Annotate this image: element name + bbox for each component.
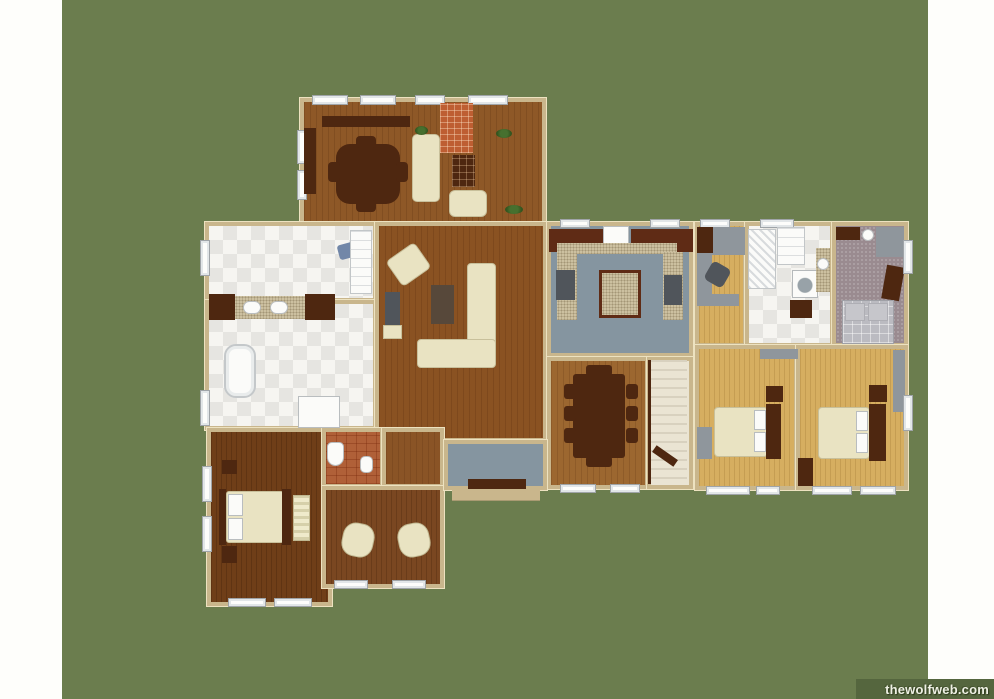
shower	[298, 396, 340, 428]
range	[556, 270, 575, 300]
dining-chair-s	[586, 456, 612, 467]
master-window-left-2	[202, 516, 212, 552]
bedroom-a-window-2	[756, 486, 780, 495]
breakfast-chair-w	[328, 162, 340, 182]
dining-chair-n	[586, 365, 612, 376]
stair-rail	[648, 360, 651, 484]
watermark: thewolfweb.com	[856, 679, 994, 699]
breakfast-chair-n	[356, 136, 376, 148]
bedroom-a-rug	[697, 427, 712, 459]
sitting-window-2	[392, 580, 426, 589]
office-cabinet	[697, 227, 713, 253]
bedroom-a-headboard	[766, 404, 781, 459]
plant-2	[496, 129, 512, 138]
bedroom-b-window-1	[812, 486, 852, 495]
tall-cabinet	[304, 128, 316, 194]
dining-chair-r2	[626, 406, 638, 421]
toilet	[327, 442, 344, 466]
laundry-vanity	[816, 248, 830, 292]
ne-dresser	[836, 227, 860, 240]
family-window-1	[312, 95, 348, 105]
breakfast-chair-e	[396, 162, 408, 182]
linen-shelves	[350, 230, 372, 294]
master-nightstand-1	[222, 460, 237, 474]
louver-closet	[748, 229, 776, 289]
refrigerator	[664, 275, 682, 305]
ne-pillow-1	[845, 303, 865, 321]
laundry-sink	[817, 258, 829, 270]
dining-chair-r3	[626, 428, 638, 443]
kitchen-window-2	[650, 219, 680, 228]
bedroom-a-window-1	[706, 486, 750, 495]
sectional-sofa-short	[417, 339, 496, 368]
render-page: { "watermark": { "text": "thewolfweb.com…	[0, 0, 994, 699]
vanity-cabinet-left	[209, 294, 235, 320]
staircase	[651, 360, 687, 484]
dining-chair-l3	[564, 428, 576, 443]
vanity-cabinet-right	[305, 294, 335, 320]
vanity-sink-1	[243, 301, 261, 314]
ne-pillow-2	[868, 303, 888, 321]
dining-chair-l1	[564, 384, 576, 399]
hall	[382, 428, 444, 488]
bedroom-a-nightstand	[766, 386, 783, 402]
bedroom-a-closet	[760, 349, 798, 359]
ne-lamp	[862, 229, 874, 241]
watermark-text: thewolfweb.com	[885, 682, 989, 697]
bedroom-b-window-2	[860, 486, 896, 495]
breakfast-chair-s	[356, 200, 376, 212]
family-window-4	[468, 95, 508, 105]
plant-1	[415, 126, 428, 135]
bedroom-b-door	[798, 458, 813, 486]
master-pillow-1	[228, 494, 243, 516]
washer	[792, 270, 818, 298]
bedroom-a-pillow-2	[754, 432, 766, 452]
wc-sink	[360, 456, 373, 473]
bedroom-a-pillow-1	[754, 410, 766, 430]
master-pillow-2	[228, 518, 243, 540]
dining-window-2	[610, 484, 640, 493]
bedroom-b-nightstand	[869, 385, 887, 402]
floor-plan	[0, 0, 994, 699]
bedroom-b-pillow-1	[856, 411, 868, 431]
master-window-south-2	[274, 598, 312, 607]
ne-window-right	[903, 240, 913, 274]
bath-window-left-2	[200, 390, 210, 426]
dining-chair-r1	[626, 384, 638, 399]
bedroom-b-pillow-2	[856, 433, 868, 453]
master-window-left-1	[202, 466, 212, 502]
coffee-table	[431, 285, 454, 324]
family-window-2	[360, 95, 396, 105]
master-nightstand-2	[222, 546, 237, 563]
bathtub	[224, 344, 256, 398]
master-window-south-1	[228, 598, 266, 607]
sitting-window-1	[334, 580, 368, 589]
breakfast-table	[336, 144, 400, 204]
plant-3	[505, 205, 523, 214]
kitchen-island	[599, 270, 641, 318]
desk	[697, 294, 739, 306]
bath-window-left	[200, 240, 210, 276]
chaise	[412, 134, 440, 202]
sideboard	[322, 116, 410, 127]
bedroom-b-window-right	[903, 395, 913, 431]
dining-table	[573, 374, 625, 458]
family-armchair	[449, 190, 487, 217]
master-bench	[293, 495, 310, 541]
fireplace	[440, 103, 473, 153]
tv-stand	[383, 325, 402, 339]
tv	[385, 292, 400, 325]
master-footboard	[282, 489, 291, 545]
entry-step	[452, 489, 540, 500]
bedroom-b-headboard	[869, 404, 886, 461]
ne-closet	[876, 227, 904, 257]
dining-window-1	[560, 484, 596, 493]
kitchen-window-1	[560, 219, 590, 228]
paneled-cabinet	[452, 155, 475, 187]
laundry-shelves	[777, 227, 805, 265]
dining-chair-l2	[564, 406, 576, 421]
vanity-sink-2	[270, 301, 288, 314]
laundry-cabinet	[790, 300, 812, 318]
front-door	[468, 479, 526, 489]
master-headboard	[219, 489, 226, 545]
